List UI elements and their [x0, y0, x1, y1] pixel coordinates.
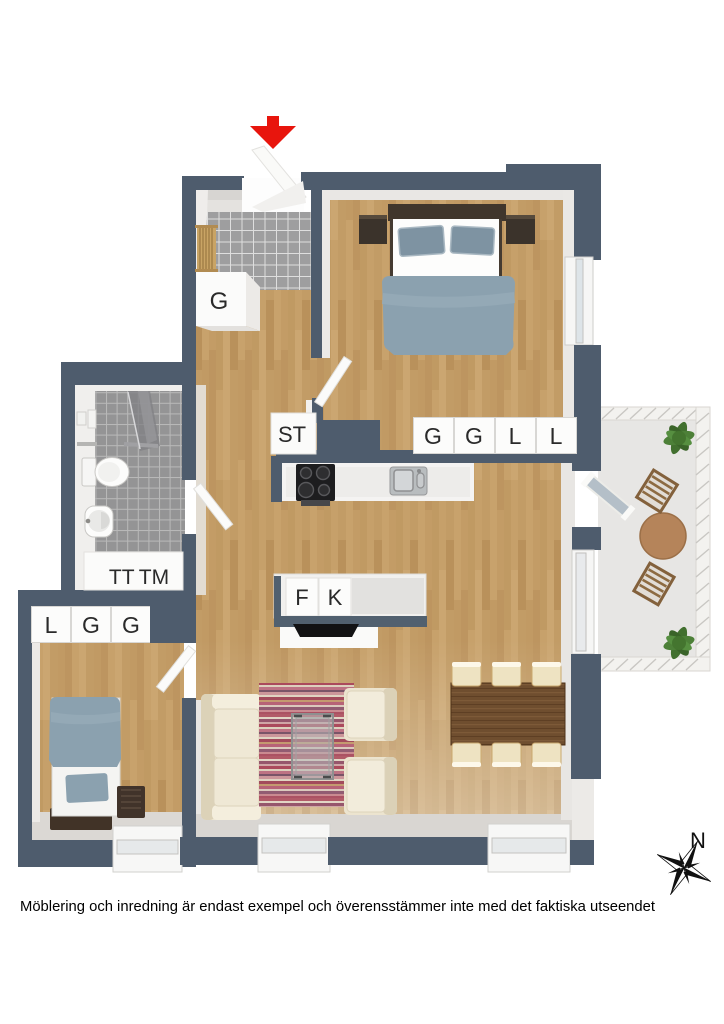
svg-text:L: L	[45, 612, 58, 638]
svg-text:TT TM: TT TM	[109, 566, 169, 589]
svg-text:G: G	[465, 423, 483, 449]
svg-text:F: F	[295, 585, 308, 610]
svg-text:ST: ST	[278, 422, 306, 447]
svg-text:G: G	[122, 612, 140, 638]
svg-text:G: G	[424, 423, 442, 449]
svg-text:L: L	[550, 423, 563, 449]
svg-text:G: G	[210, 288, 229, 315]
svg-text:Möblering och inredning är end: Möblering och inredning är endast exempe…	[20, 899, 655, 915]
svg-text:G: G	[82, 612, 100, 638]
svg-text:L: L	[509, 423, 522, 449]
svg-text:N: N	[690, 828, 706, 853]
svg-text:K: K	[328, 585, 343, 610]
